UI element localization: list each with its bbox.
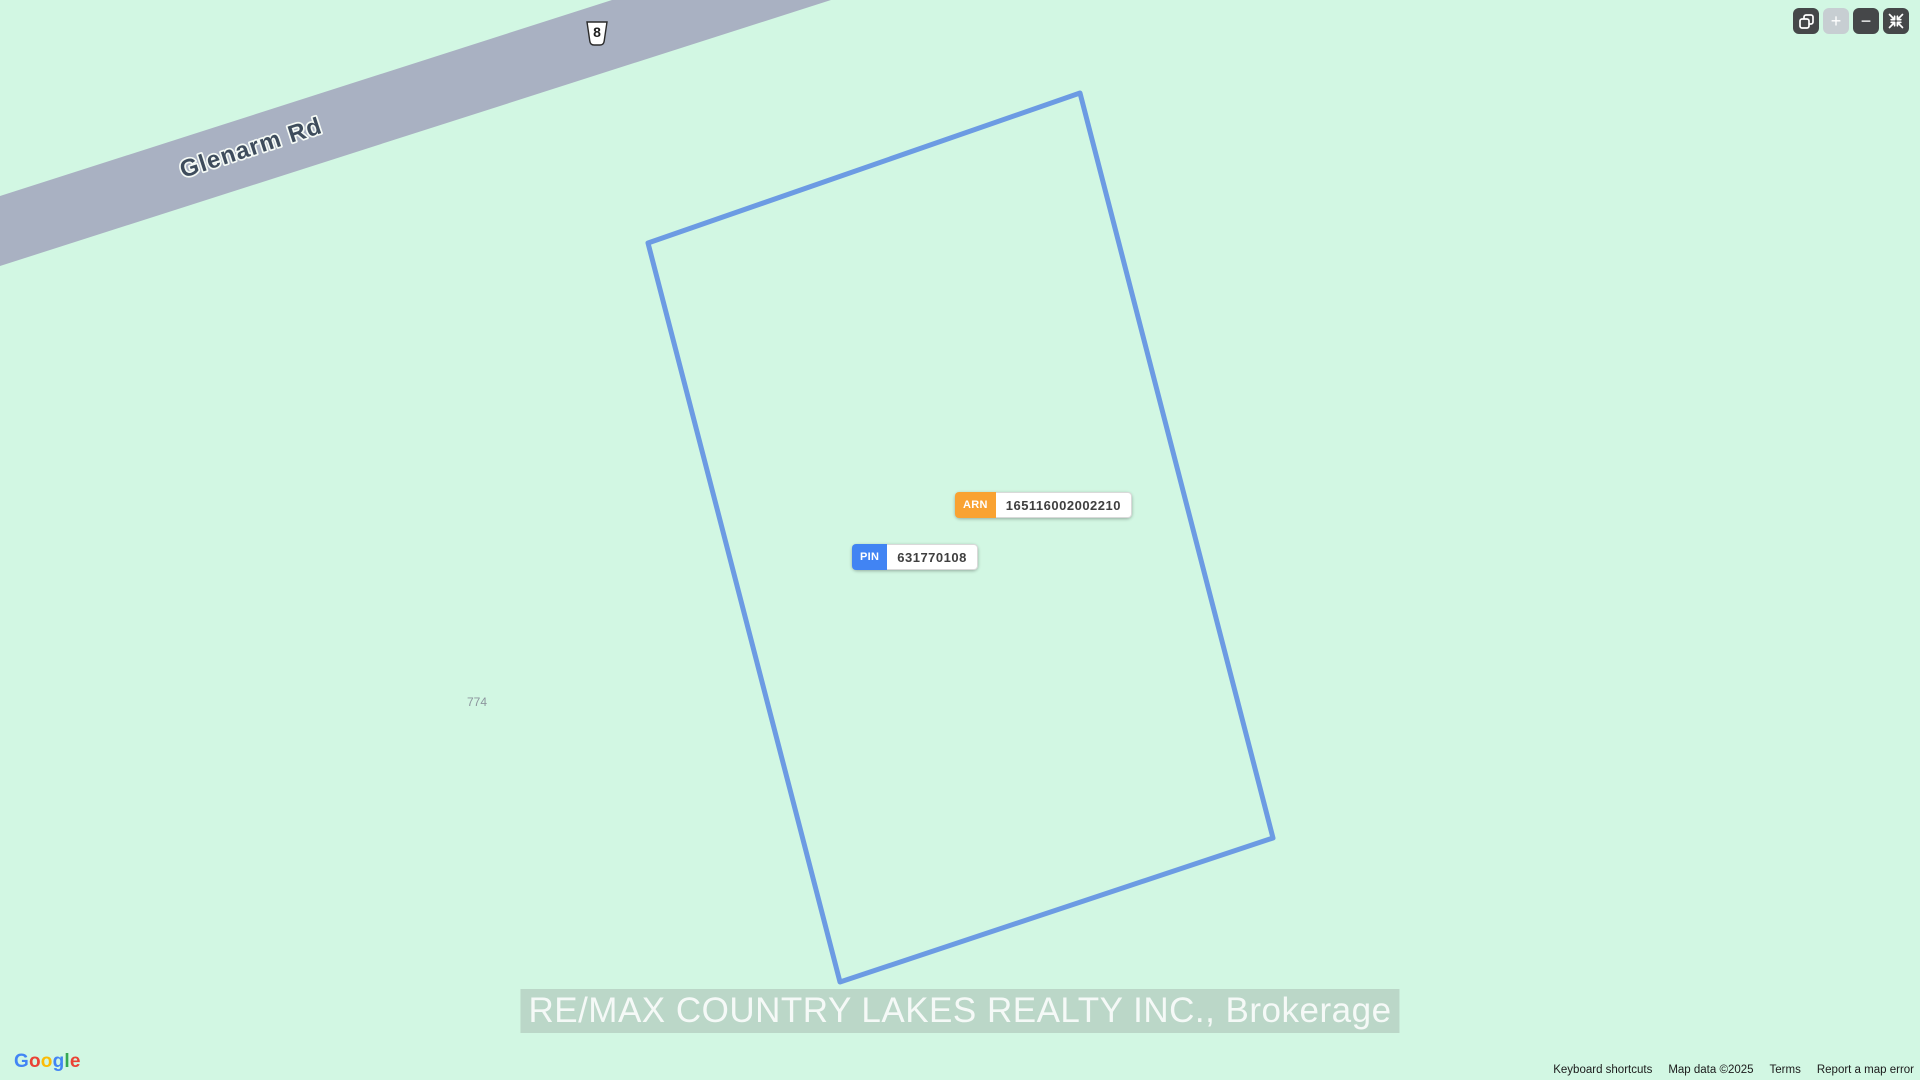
terms-link[interactable]: Terms bbox=[1770, 1064, 1801, 1076]
google-logo-letter: e bbox=[70, 1051, 81, 1072]
keyboard-shortcuts-button[interactable]: Keyboard shortcuts bbox=[1553, 1064, 1652, 1076]
map-controls: + − bbox=[1793, 8, 1909, 34]
route-number: 8 bbox=[586, 23, 608, 42]
arn-badge: ARN bbox=[955, 492, 996, 518]
google-logo-letter: o bbox=[29, 1051, 41, 1072]
pin-badge: PIN bbox=[852, 544, 887, 570]
zoom-out-button[interactable]: − bbox=[1853, 8, 1879, 34]
road-shape bbox=[0, 0, 831, 266]
map-data-copyright: Map data ©2025 bbox=[1668, 1064, 1753, 1076]
arn-value: 165116002002210 bbox=[996, 492, 1132, 518]
arn-tag: ARN 165116002002210 bbox=[955, 492, 1132, 518]
zoom-in-button[interactable]: + bbox=[1823, 8, 1849, 34]
attribution-bar: Keyboard shortcuts Map data ©2025 Terms … bbox=[1553, 1064, 1914, 1076]
route-shield: 8 bbox=[586, 21, 608, 46]
report-map-error-link[interactable]: Report a map error bbox=[1817, 1064, 1914, 1076]
copy-map-button[interactable] bbox=[1793, 8, 1819, 34]
plus-icon: + bbox=[1831, 12, 1842, 30]
google-logo-letter: g bbox=[53, 1051, 65, 1072]
map-canvas[interactable]: Glenarm Rd bbox=[0, 0, 1920, 1080]
google-logo-letter: o bbox=[41, 1051, 53, 1072]
house-number-label: 774 bbox=[467, 695, 487, 709]
copy-icon bbox=[1798, 13, 1815, 30]
exit-fullscreen-button[interactable] bbox=[1883, 8, 1909, 34]
pin-tag: PIN 631770108 bbox=[852, 544, 978, 570]
compress-icon bbox=[1888, 13, 1904, 29]
parcel-outline bbox=[648, 93, 1273, 982]
google-logo-letter: G bbox=[14, 1051, 29, 1072]
pin-value: 631770108 bbox=[887, 544, 978, 570]
brokerage-watermark: RE/MAX COUNTRY LAKES REALTY INC., Broker… bbox=[520, 989, 1399, 1033]
minus-icon: − bbox=[1861, 12, 1872, 30]
google-logo[interactable]: Google bbox=[14, 1051, 81, 1073]
